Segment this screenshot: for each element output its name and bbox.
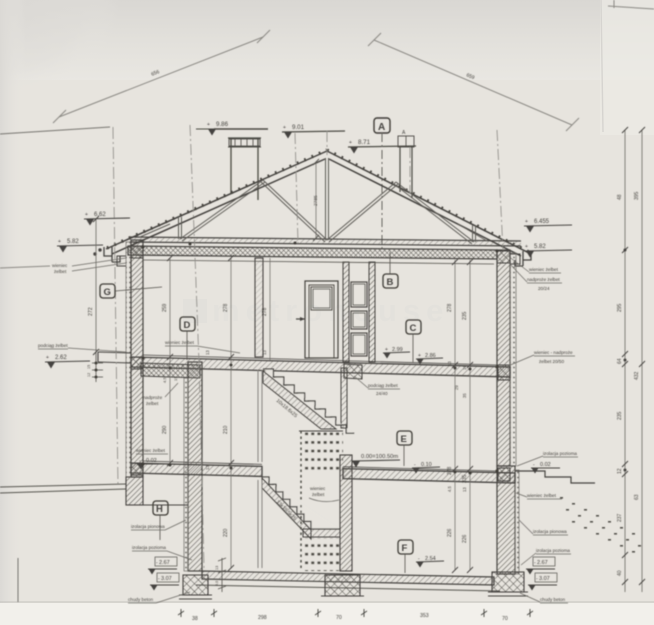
svg-text:żelbet: żelbet [54,269,67,274]
svg-text:20/24: 20/24 [538,286,550,291]
svg-text:nadproże: nadproże [143,395,163,400]
svg-text:D: D [184,320,191,331]
svg-text:432: 432 [634,371,640,380]
svg-text:13: 13 [215,566,219,570]
svg-text:+: + [525,219,528,225]
svg-text:15: 15 [173,376,178,381]
svg-text:298: 298 [258,615,267,621]
svg-text:9.86: 9.86 [216,121,229,128]
svg-text:272: 272 [88,307,94,316]
svg-text:0.02: 0.02 [146,458,157,464]
svg-text:353: 353 [420,613,429,619]
svg-text:8.71: 8.71 [358,139,371,146]
svg-text:278: 278 [262,307,268,316]
svg-text:wieniec żelbet: wieniec żelbet [136,448,166,453]
svg-text:295: 295 [617,303,623,312]
svg-text:235: 235 [617,411,623,420]
svg-text:70: 70 [336,615,342,621]
svg-text:2.67: 2.67 [537,560,548,566]
svg-text:2.54: 2.54 [425,556,436,562]
svg-text:2.99: 2.99 [392,347,403,353]
svg-text:63: 63 [634,494,640,500]
svg-text:0.10: 0.10 [421,462,432,468]
svg-text:G: G [104,287,111,298]
svg-text:+: + [85,212,88,218]
svg-text:żelbet: żelbet [312,492,325,497]
svg-text:13: 13 [262,350,267,355]
svg-text:220: 220 [223,528,229,537]
svg-text:wieniec żelbet: wieniec żelbet [527,493,557,498]
svg-text:+: + [46,355,49,361]
svg-text:E: E [401,434,407,445]
svg-text:38: 38 [192,616,198,622]
svg-text:nadproże żelbet: nadproże żelbet [527,277,560,282]
svg-text:2.86: 2.86 [425,353,436,359]
svg-text:278: 278 [447,466,453,475]
svg-text:6.62: 6.62 [94,212,106,218]
svg-text:5.82: 5.82 [534,244,546,250]
svg-text:64: 64 [617,358,623,364]
svg-text:żelbet: żelbet [146,401,159,406]
svg-text:210: 210 [223,425,229,434]
svg-text:0.00=100.50m: 0.00=100.50m [361,454,398,460]
svg-text:4.5: 4.5 [447,486,452,492]
svg-text:395: 395 [634,191,640,200]
svg-text:+: + [385,347,388,353]
svg-text:235: 235 [462,311,468,320]
svg-text:C: C [410,323,417,334]
svg-text:wieniec: wieniec [52,263,68,268]
svg-text:chudy beton: chudy beton [128,597,153,602]
svg-text:13: 13 [205,465,210,470]
svg-text:290: 290 [162,425,168,434]
svg-text:B: B [387,277,394,288]
svg-text:6.455: 6.455 [534,219,550,225]
svg-text:+: + [525,244,528,250]
svg-text:+: + [207,122,210,128]
svg-text:12: 12 [87,373,91,377]
svg-text:izolacja pozioma: izolacja pozioma [543,451,577,456]
svg-text:9.01: 9.01 [292,124,305,131]
svg-text:15: 15 [87,365,91,369]
svg-text:wieniec żelbet: wieniec żelbet [529,267,559,272]
svg-text:29: 29 [454,385,459,390]
svg-text:podciąg żelbet: podciąg żelbet [368,383,398,388]
svg-text:0.02: 0.02 [540,462,551,468]
svg-text:4.5: 4.5 [162,377,167,383]
svg-text:A: A [378,122,385,133]
svg-text:żelbet 20/50: żelbet 20/50 [539,359,564,364]
svg-text:40: 40 [617,570,623,576]
svg-text:278: 278 [223,303,229,312]
svg-text:235: 235 [462,474,468,483]
svg-text:35: 35 [462,393,467,398]
svg-text:izolacja pozioma: izolacja pozioma [132,545,166,550]
svg-text:wieniec: wieniec [310,486,326,491]
svg-text:24/40: 24/40 [376,391,388,396]
svg-text:podciąg żelbet: podciąg żelbet [38,343,68,348]
svg-text:237: 237 [617,513,623,522]
svg-text:13: 13 [447,361,452,366]
svg-text:70: 70 [502,616,508,622]
svg-text:278: 278 [447,303,453,312]
svg-text:226: 226 [462,534,468,543]
svg-text:12: 12 [617,468,623,474]
svg-text:H: H [156,504,163,515]
svg-text:izolacja pionowa: izolacja pionowa [533,529,567,534]
svg-text:+: + [58,239,61,245]
svg-text:13: 13 [205,350,210,355]
svg-text:2.62: 2.62 [55,355,67,361]
svg-text:2.67: 2.67 [159,560,170,566]
svg-text:2785: 2785 [313,195,319,206]
svg-text:3.07: 3.07 [161,576,172,582]
svg-text:13: 13 [462,487,467,492]
svg-text:izolacja pozioma: izolacja pozioma [536,548,570,553]
svg-text:+: + [349,140,352,146]
svg-text:4.0: 4.0 [215,581,219,586]
svg-text:wieniec żelbet: wieniec żelbet [165,340,195,345]
svg-text:wieniec - nadproże: wieniec - nadproże [534,350,573,355]
svg-text:16: 16 [462,365,467,370]
svg-text:5.82: 5.82 [67,239,79,245]
svg-text:F: F [402,543,408,554]
svg-text:+: + [418,353,421,359]
svg-text:3.07: 3.07 [539,576,550,582]
svg-text:izolacja pionowa: izolacja pionowa [131,524,165,529]
svg-text:chudy beton: chudy beton [540,597,565,602]
svg-text:48: 48 [617,194,623,200]
svg-text:226: 226 [447,528,453,537]
svg-text:259: 259 [162,303,168,312]
svg-text:+: + [283,125,286,131]
